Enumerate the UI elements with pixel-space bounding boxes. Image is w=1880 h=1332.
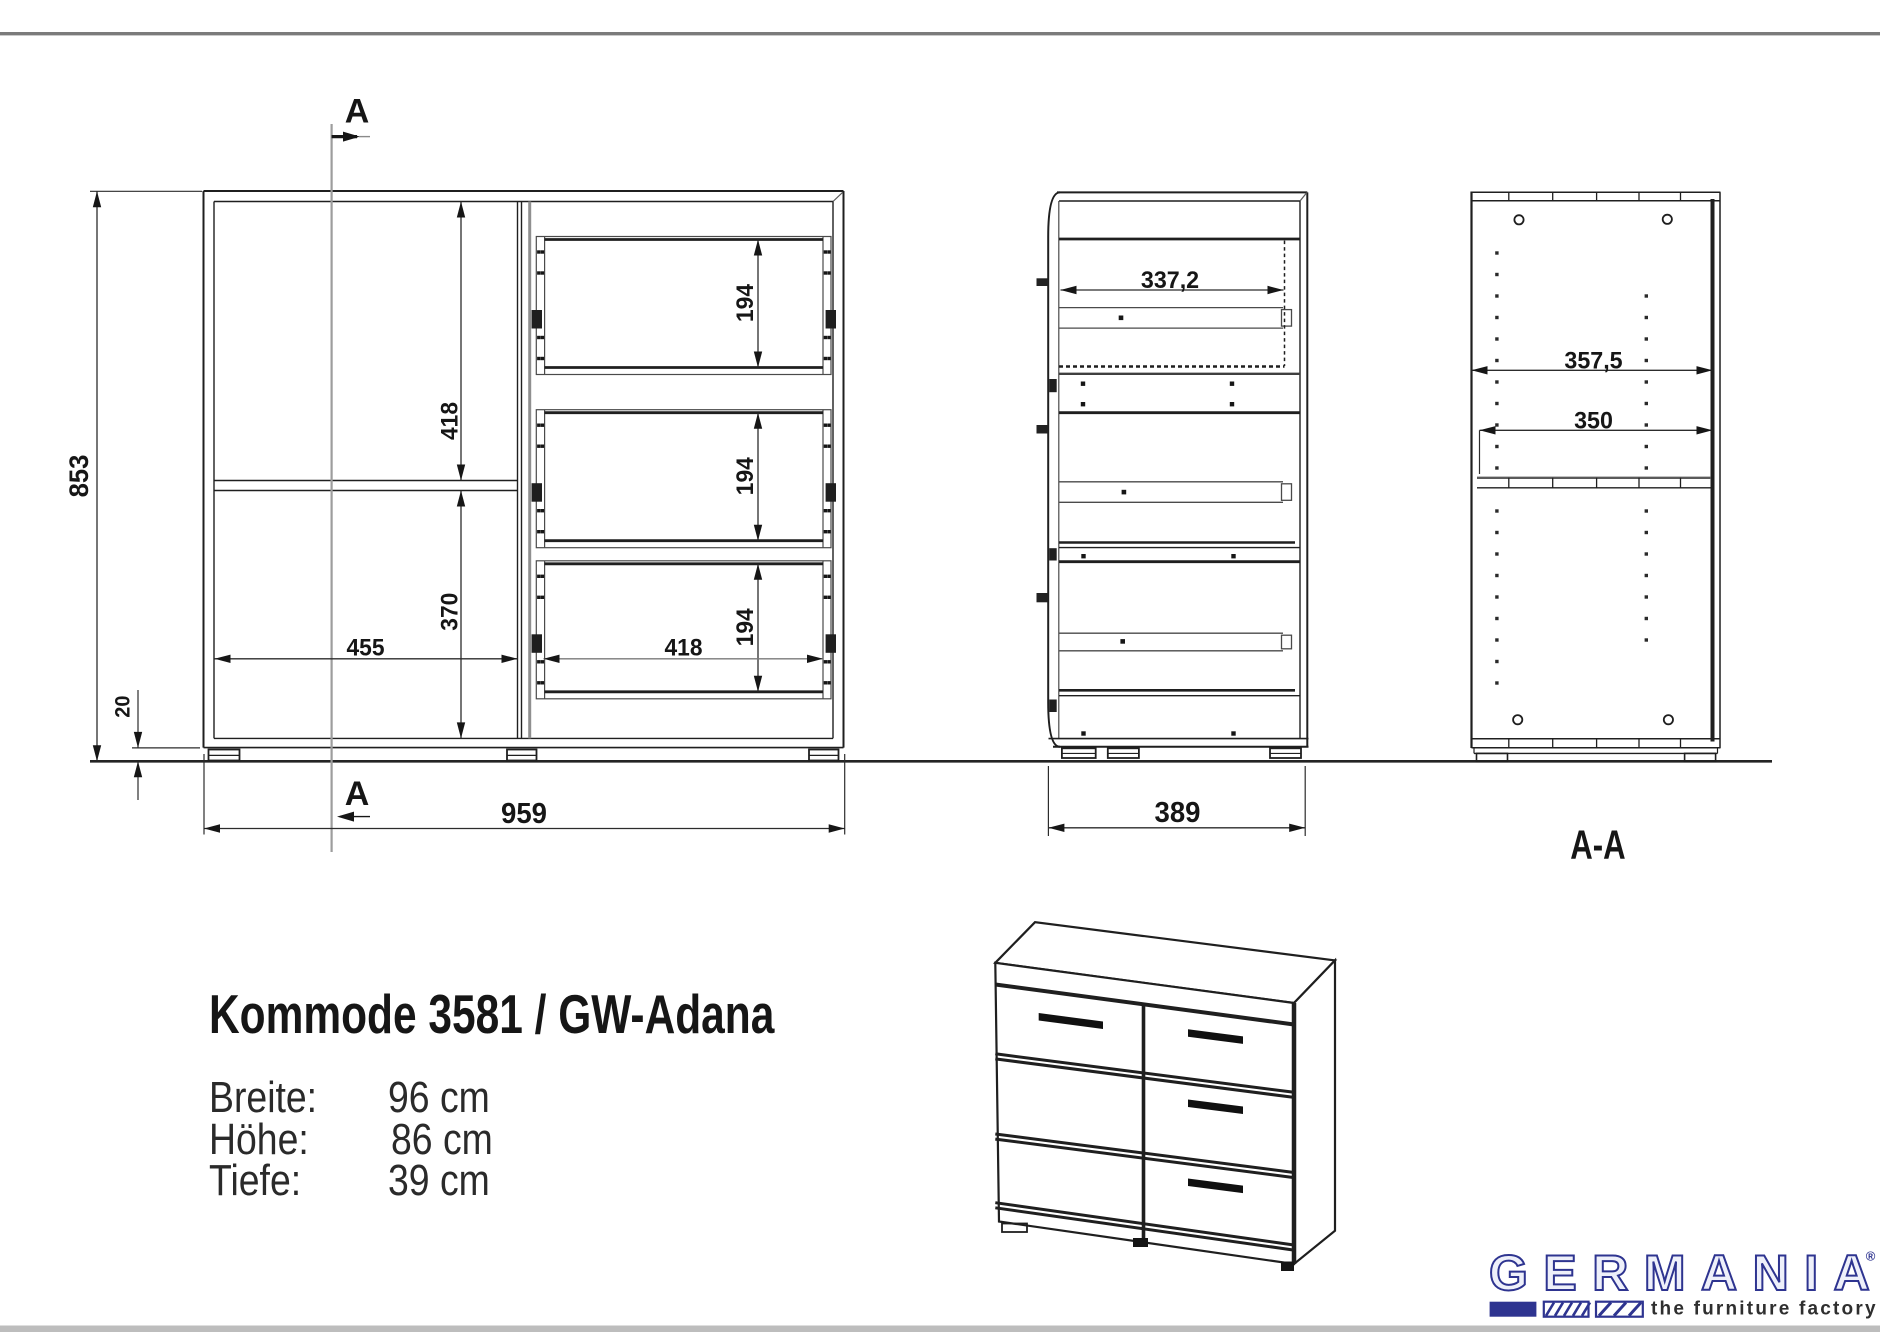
svg-text:350: 350 [1574, 407, 1613, 435]
svg-text:337,2: 337,2 [1141, 266, 1199, 294]
svg-text:389: 389 [1155, 795, 1201, 828]
svg-text:370: 370 [436, 593, 463, 631]
svg-text:853: 853 [63, 455, 94, 498]
svg-text:194: 194 [731, 608, 758, 646]
svg-text:Tiefe:: Tiefe: [209, 1155, 301, 1205]
svg-text:20: 20 [111, 696, 135, 718]
svg-text:the furniture factory: the furniture factory [1651, 1299, 1878, 1320]
svg-text:A-A: A-A [1570, 821, 1625, 867]
svg-text:39 cm: 39 cm [388, 1155, 490, 1205]
svg-text:®: ® [1866, 1249, 1876, 1264]
svg-text:194: 194 [731, 457, 758, 495]
svg-text:418: 418 [436, 402, 463, 440]
svg-text:GERMANIA: GERMANIA [1489, 1245, 1880, 1301]
svg-text:Kommode 3581 / GW-Adana: Kommode 3581 / GW-Adana [209, 985, 775, 1045]
svg-text:418: 418 [664, 634, 702, 661]
svg-text:A: A [345, 775, 370, 813]
svg-text:959: 959 [501, 796, 547, 829]
svg-text:357,5: 357,5 [1564, 347, 1622, 375]
svg-text:455: 455 [346, 634, 384, 661]
svg-text:A: A [345, 93, 370, 131]
svg-text:194: 194 [731, 284, 758, 322]
